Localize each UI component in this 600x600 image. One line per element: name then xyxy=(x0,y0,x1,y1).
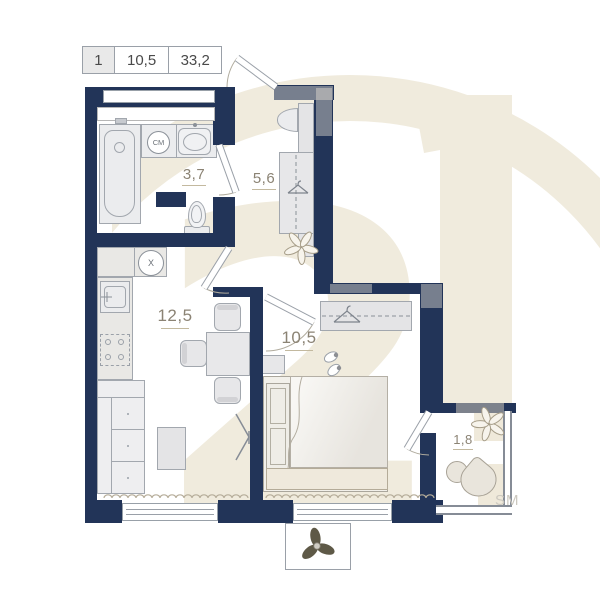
dining-table xyxy=(206,332,250,376)
dining-chair-top xyxy=(214,303,241,331)
hallway-wardrobe xyxy=(279,152,314,234)
dining-chair-bottom xyxy=(214,377,241,404)
burner xyxy=(105,354,111,360)
bathtub xyxy=(99,124,141,224)
sofa-cushion-line xyxy=(112,461,145,462)
cushion-button xyxy=(127,477,129,479)
sofa-armrest-line xyxy=(98,397,144,398)
shelf-compartment xyxy=(270,428,286,465)
dining-chair-left xyxy=(180,340,207,367)
bedroom-area: 10,5 xyxy=(277,328,321,348)
legend-rooms-count: 1 xyxy=(83,47,114,73)
chair-backrest xyxy=(182,343,187,364)
bathroom-label: 3,7 xyxy=(177,166,211,186)
label-rule xyxy=(182,185,206,186)
fridge-icon: Х xyxy=(138,250,164,276)
bedroom-window xyxy=(293,503,392,521)
counter-divider xyxy=(134,248,135,276)
cushion-button xyxy=(127,413,129,415)
chair-backrest xyxy=(217,397,238,402)
bathroom-area: 3,7 xyxy=(177,166,211,183)
balcony-label: 1,8 xyxy=(446,432,480,450)
vanity-divider xyxy=(176,125,177,157)
wall-tint-hall-right xyxy=(316,88,332,136)
window-glass-line xyxy=(297,514,388,515)
bathtub-drain xyxy=(114,142,125,153)
burner xyxy=(118,354,124,360)
nightstand xyxy=(260,355,285,374)
shelf-compartment xyxy=(270,388,286,424)
bed-side-shelf xyxy=(266,383,290,469)
wall-bathroom-bottom xyxy=(85,233,235,247)
kitchen-living-area: 12,5 xyxy=(153,306,197,326)
burner xyxy=(105,339,111,345)
label-rule xyxy=(252,189,276,190)
stove xyxy=(100,334,130,366)
wall-balcony-top-left xyxy=(420,403,456,413)
wall-bottom-left xyxy=(85,500,122,523)
chair-backrest xyxy=(217,305,238,310)
wall-bathroom-right-upper xyxy=(213,87,235,145)
floorplan-canvas: 2 1 10,5 33,2 xyxy=(0,0,600,600)
wall-balcony-left xyxy=(420,433,436,503)
toilet-bowl-inner xyxy=(191,205,202,223)
label-rule xyxy=(161,328,189,329)
kitchen-living-label: 12,5 xyxy=(153,306,197,329)
hallway-area: 5,6 xyxy=(247,170,281,187)
label-rule xyxy=(453,449,473,450)
bedroom-wardrobe xyxy=(320,301,412,331)
wall-bottom-pier xyxy=(218,500,293,523)
legend-table: 1 10,5 33,2 xyxy=(82,46,222,74)
balcony-area: 1,8 xyxy=(446,432,480,447)
wall-left xyxy=(85,87,97,523)
label-rule xyxy=(285,350,313,351)
wall-tint-bedroom-right xyxy=(421,284,442,308)
wall-living-bedroom xyxy=(250,287,263,523)
washing-machine-icon: СМ xyxy=(147,131,170,154)
living-room-window xyxy=(122,503,218,521)
sofa-cushion-line xyxy=(112,429,145,430)
wall-tint-bedroom-top xyxy=(330,284,372,293)
burner xyxy=(118,339,124,345)
sofa-back-line xyxy=(111,398,112,493)
window-glass-line xyxy=(297,509,388,510)
window-glass-line xyxy=(126,514,214,515)
cushion-button xyxy=(127,445,129,447)
bathroom-sink xyxy=(178,128,211,155)
bed-foot-bench xyxy=(266,468,388,490)
bathroom-vent-window xyxy=(103,90,215,103)
bathtub-faucet-icon xyxy=(115,118,127,124)
washing-machine-label: СМ xyxy=(153,138,165,147)
fridge-label: Х xyxy=(148,258,154,268)
sink-faucet-icon xyxy=(193,123,197,127)
toilet-bowl xyxy=(188,201,206,228)
sink-bowl xyxy=(183,133,207,151)
kitchen-sink xyxy=(100,281,130,313)
coffee-table xyxy=(157,427,186,470)
sofa xyxy=(97,380,145,494)
ac-unit-box xyxy=(285,523,351,570)
bedroom-label: 10,5 xyxy=(277,328,321,351)
legend-total-area: 33,2 xyxy=(168,47,221,73)
service-mark-text: SM xyxy=(495,492,520,509)
kitchen-sink-basin xyxy=(104,286,126,308)
wall-balcony-lintel xyxy=(456,403,504,413)
wall-toilet-stub xyxy=(156,192,186,207)
window-glass-line xyxy=(126,509,214,510)
legend-living-area: 10,5 xyxy=(114,47,169,73)
hallway-label: 5,6 xyxy=(247,170,281,190)
duvet xyxy=(290,376,388,468)
